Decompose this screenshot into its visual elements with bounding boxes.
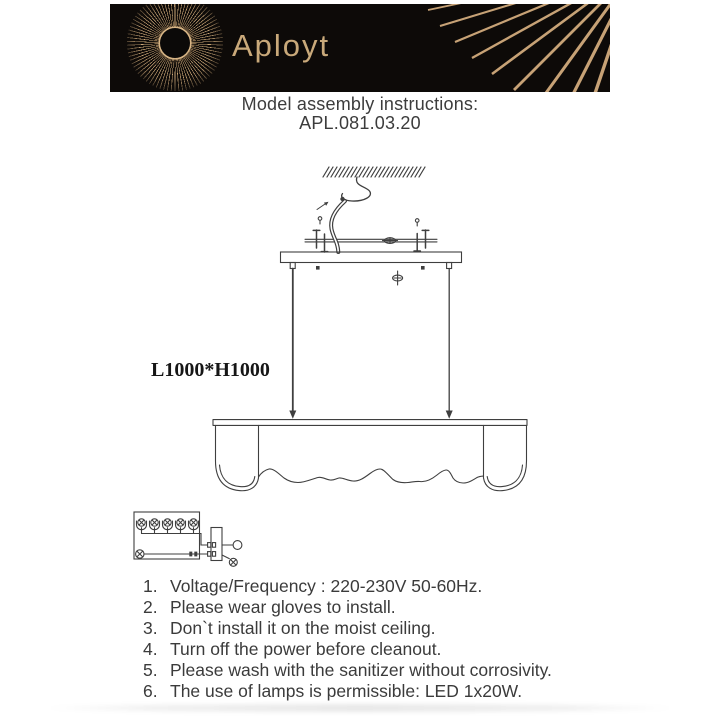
glass-shade-wave [259,469,484,483]
canopy-screw-dot [421,266,425,270]
item-number: 1. [143,576,170,597]
screw-symbol-vertical [393,271,403,285]
list-item: 4. Turn off the power before cleanout. [143,639,613,660]
switch-lamp-symbol [136,550,144,558]
item-text: The use of lamps is permissible: LED 1x2… [170,681,613,702]
small-screw-icon [318,217,322,224]
item-number: 4. [143,639,170,660]
cable-arrowhead [446,411,453,419]
terminal [208,543,211,548]
lamp-bus-wire [142,534,208,546]
screw-symbol-horizontal [383,238,398,244]
lamp-symbol [163,519,173,534]
ceiling-hook-wire [342,177,371,201]
list-item: 3. Don`t install it on the moist ceiling… [143,618,613,639]
page-bottom-shadow [40,704,680,712]
output-terminal [233,541,242,550]
ground-lamp-symbol [229,558,237,566]
item-number: 6. [143,681,170,702]
dimension-label: L1000*H1000 [151,359,270,382]
lamp-symbol [137,519,147,534]
glass-endcap-left [216,425,259,490]
bracket-bolt [414,234,420,252]
lamp-symbol [150,519,160,534]
canopy [281,252,462,263]
canopy-screw-dot [316,266,320,270]
item-text: Don`t install it on the moist ceiling. [170,618,613,639]
terminal [208,552,211,557]
fixture-frame [213,420,527,426]
item-number: 2. [143,597,170,618]
cable-gland [290,263,295,269]
ceiling-hatch [323,167,425,177]
item-text: Turn off the power before cleanout. [170,639,613,660]
cable-gland [447,263,452,269]
glass-endcap-right [484,425,527,490]
cable-arrowhead [289,411,296,419]
terminal [212,543,215,548]
list-item: 1. Voltage/Frequency : 220-230V 50-60Hz. [143,576,613,597]
lamp-symbol [189,519,199,534]
instruction-list: 1. Voltage/Frequency : 220-230V 50-60Hz.… [143,576,613,702]
item-text: Please wash with the sanitizer without c… [170,660,613,681]
item-number: 5. [143,660,170,681]
item-text: Voltage/Frequency : 220-230V 50-60Hz. [170,576,613,597]
item-text: Please wear gloves to install. [170,597,613,618]
item-number: 3. [143,618,170,639]
small-screw-icon [415,219,419,226]
terminal [212,552,215,557]
lamp-symbol [176,519,186,534]
list-item: 5. Please wash with the sanitizer withou… [143,660,613,681]
list-item: 6. The use of lamps is permissible: LED … [143,681,613,702]
wiring-diagram [134,512,242,566]
bracket-bolt [321,234,328,252]
list-item: 2. Please wear gloves to install. [143,597,613,618]
